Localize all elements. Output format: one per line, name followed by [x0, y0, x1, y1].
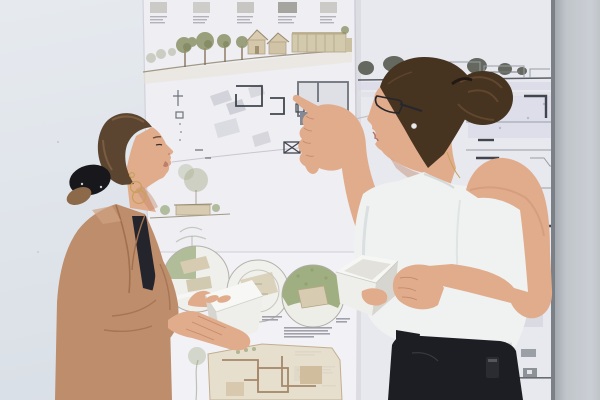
photo-scene: [0, 0, 600, 400]
photo-grade: [0, 0, 600, 400]
photo-canvas: [0, 0, 600, 400]
